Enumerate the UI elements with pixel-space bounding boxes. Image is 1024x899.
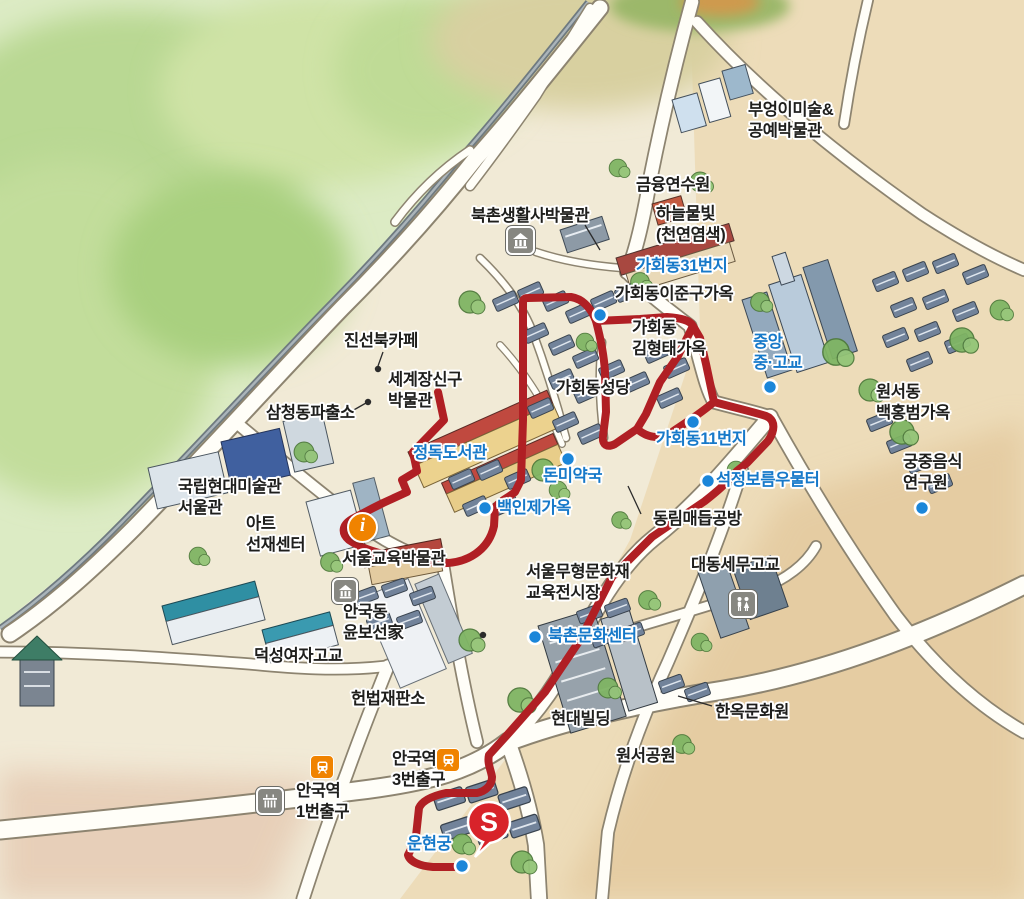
label-jungang-middle-high-school: 중앙 중·고교 xyxy=(753,332,802,374)
label-baek-hong-beom-house: 원서동 백홍범가옥 xyxy=(876,382,950,424)
label-hanok-culture-center: 한옥문화원 xyxy=(715,702,789,723)
label-gahoedong-31: 가회동31번지 xyxy=(636,256,727,277)
label-haneulmulbit-dye: 하늘물빛 (천연염색) xyxy=(656,204,725,246)
start-pin-letter: S xyxy=(480,807,498,837)
museum-icon[interactable] xyxy=(332,578,358,604)
label-yun-bo-seon-house: 안국동 윤보선家 xyxy=(343,602,403,644)
label-kim-hyeong-tae-house: 가회동 김형태가옥 xyxy=(632,318,706,360)
label-finance-training-institute: 금융연수원 xyxy=(636,175,710,196)
label-mmca-seoul: 국립현대미술관 서울관 xyxy=(178,477,281,519)
label-samcheongdong-police-box: 삼청동파출소 xyxy=(266,403,355,424)
label-jeongdok-library: 정독도서관 xyxy=(413,443,487,464)
museum-icon[interactable] xyxy=(506,226,535,255)
label-intangible-heritage-hall: 서울무형문화재 교육전시장 xyxy=(526,562,629,604)
subway-icon[interactable] xyxy=(310,755,334,779)
label-royal-cuisine-institute: 궁중음식 연구원 xyxy=(903,452,962,494)
label-bukchon-life-history-museum: 북촌생활사박물관 xyxy=(471,206,589,227)
label-seoul-education-museum: 서울교육박물관 xyxy=(342,549,445,570)
label-anguk-station-exit1: 안국역 1번출구 xyxy=(296,781,349,823)
label-wonseo-park: 원서공원 xyxy=(616,746,675,767)
label-baek-in-je-house: 백인제가옥 xyxy=(497,498,571,519)
label-gahoedong-cathedral: 가회동성당 xyxy=(556,378,630,399)
label-owl-art-craft-museum: 부엉이미술& 공예박물관 xyxy=(748,100,833,142)
label-seokjeongboreum-well: 석정보름우물터 xyxy=(716,470,819,491)
label-daedong-tax-high-school: 대동세무고교 xyxy=(691,555,780,576)
label-unhyeongung: 운현궁 xyxy=(407,834,451,855)
palace-icon[interactable] xyxy=(256,787,284,815)
label-bukchon-culture-center: 북촌문화센터 xyxy=(548,626,637,647)
info-icon[interactable]: i xyxy=(347,512,378,543)
label-hyundai-building: 현대빌딩 xyxy=(551,709,610,730)
label-constitutional-court: 헌법재판소 xyxy=(351,689,425,710)
bukchon-illustrated-map: 부엉이미술& 공예박물관 금융연수원 하늘물빛 (천연염색) 북촌생활사박물관 … xyxy=(0,0,1024,899)
label-jinsun-book-cafe: 진선북카페 xyxy=(344,331,418,352)
label-lee-jun-gu-house: 가회동이준구가옥 xyxy=(615,284,733,305)
label-dongnim-knot-workshop: 동림매듭공방 xyxy=(653,509,742,530)
label-gahoedong-11: 가회동11번지 xyxy=(656,429,747,450)
map-artwork xyxy=(0,0,1024,899)
label-anguk-station-exit3: 안국역 3번출구 xyxy=(392,749,445,791)
start-pin[interactable]: S xyxy=(463,800,515,865)
label-duksung-girls-high-school: 덕성여자고교 xyxy=(254,646,343,667)
label-world-jewellery-museum: 세계장신구 박물관 xyxy=(388,370,462,412)
restroom-icon[interactable] xyxy=(729,590,757,618)
label-art-sonje-center: 아트 선재센터 xyxy=(246,514,305,556)
label-donmi-pharmacy: 돈미약국 xyxy=(543,466,602,487)
